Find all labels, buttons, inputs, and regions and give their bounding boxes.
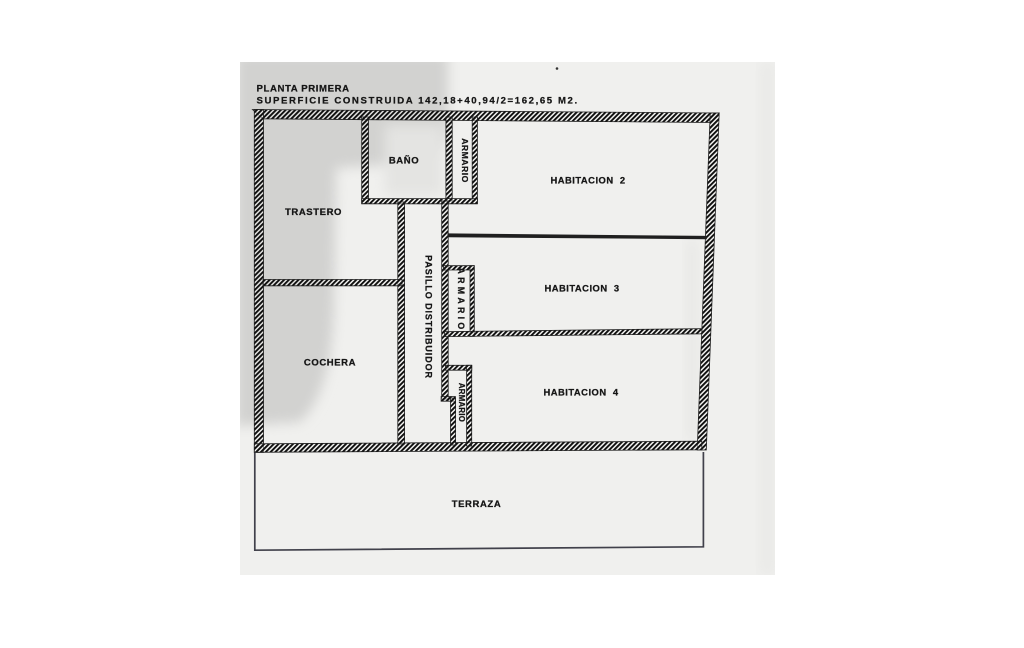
svg-text:HABITACION 2: HABITACION 2 <box>550 175 625 186</box>
svg-text:ARMARIO: ARMARIO <box>456 267 466 332</box>
svg-text:ARMARIO: ARMARIO <box>460 138 470 183</box>
svg-text:HABITACION 4: HABITACION 4 <box>543 387 618 398</box>
svg-text:TRASTERO: TRASTERO <box>285 207 342 218</box>
svg-text:SUPERFICIE CONSTRUIDA 142,18+4: SUPERFICIE CONSTRUIDA 142,18+40,94/2=162… <box>257 95 579 106</box>
svg-text:COCHERA: COCHERA <box>304 358 356 369</box>
svg-text:HABITACION 3: HABITACION 3 <box>544 283 619 294</box>
svg-text:PASILLO DISTRIBUIDOR: PASILLO DISTRIBUIDOR <box>423 255 433 379</box>
svg-text:TERRAZA: TERRAZA <box>452 499 502 510</box>
svg-text:ARMARIO: ARMARIO <box>457 383 466 422</box>
svg-text:BAÑO: BAÑO <box>389 156 419 167</box>
svg-text:PLANTA PRIMERA: PLANTA PRIMERA <box>257 84 350 95</box>
